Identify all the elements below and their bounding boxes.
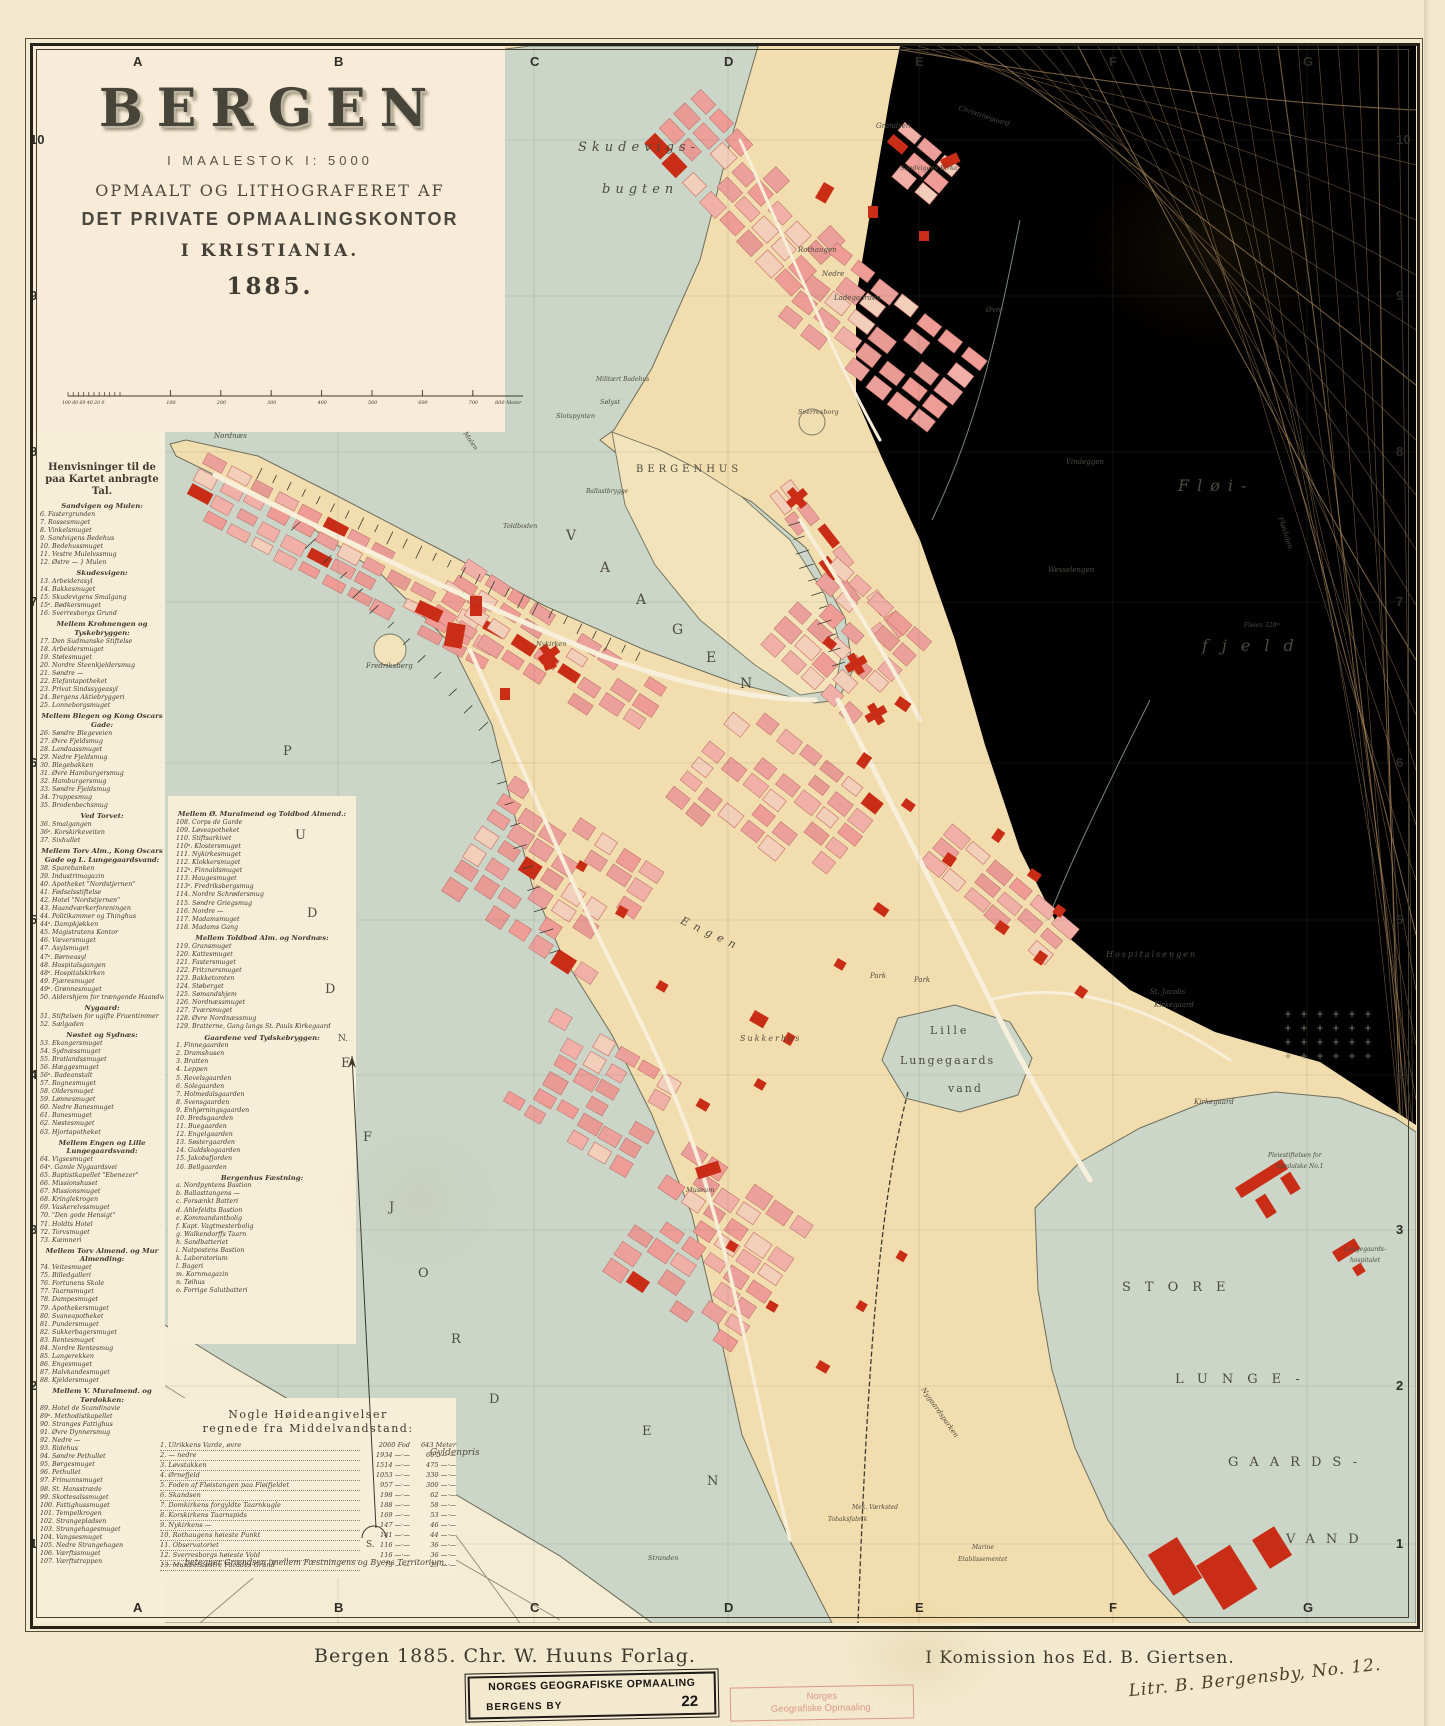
legend-mid-section-head: Mellem Toldbod Alm. og Nordnæs: bbox=[176, 934, 348, 943]
grid-label: 1 bbox=[30, 1536, 37, 1551]
legend-entry: 3. Bratten bbox=[176, 1058, 348, 1066]
grid-label: B bbox=[334, 54, 343, 69]
legend-entry: 63. Hjortapotheket bbox=[40, 1129, 164, 1137]
legend-entry: 17. Den Sudmanske Stiftelse bbox=[40, 638, 164, 646]
svg-text:100: 100 bbox=[166, 400, 175, 406]
legend-left-section-head: Mellem V. Muralmend. og Tørdokken: bbox=[40, 1387, 164, 1404]
legend-entry: 9. Sandvigens Bedehus bbox=[40, 535, 164, 543]
legend-references-continued: Mellem Ø. Muralmend og Toldbod Almend.:1… bbox=[176, 808, 348, 1296]
grid-label: 7 bbox=[30, 594, 37, 609]
legend-entry: 43. Haandværkerforeningen bbox=[40, 905, 164, 913]
legend-entry: 77. Taarnsmuget bbox=[40, 1288, 164, 1296]
legend-entry: 12. Østre — } Mulen bbox=[40, 559, 164, 567]
legend-entry: 86. Engesmuget bbox=[40, 1361, 164, 1369]
legend-entry: 89. Hotel de Scandinavie bbox=[40, 1405, 164, 1413]
legend-entry: 35. Brodenbechsmug bbox=[40, 802, 164, 810]
legend-entry: 126. Nordnæssmuget bbox=[176, 999, 348, 1007]
svg-text:500: 500 bbox=[368, 400, 377, 406]
legend-entry: 99. Skottesalssmuget bbox=[40, 1494, 164, 1502]
legend-entry: 24. Bergens Aktiebryggeri bbox=[40, 694, 164, 702]
legend-entry: 109. Løveapotheket bbox=[176, 827, 348, 835]
grid-label: 1 bbox=[1396, 1536, 1403, 1551]
legend-entry: 36ᵃ. Korskirkeveiten bbox=[40, 829, 164, 837]
publisher-imprint: Bergen 1885. Chr. W. Huuns Forlag. bbox=[280, 1645, 730, 1667]
legend-entry: 31. Øvre Hamburgersmug bbox=[40, 770, 164, 778]
legend-mid-section-head: Bergenhus Fæstning: bbox=[176, 1174, 348, 1183]
grid-label: 7 bbox=[1396, 594, 1403, 609]
legend-entry: 38. Sparebanken bbox=[40, 865, 164, 873]
legend-entry: 30. Blegebakken bbox=[40, 762, 164, 770]
legend-entry: 64ᵃ. Gamle Nygaardsvei bbox=[40, 1164, 164, 1172]
legend-entry: 45. Magistratens Kontor bbox=[40, 929, 164, 937]
legend-entry: 42. Hotel "Nordstjernen" bbox=[40, 897, 164, 905]
legend-entry: 29. Nedre Fjeldsmug bbox=[40, 754, 164, 762]
svg-text:300: 300 bbox=[267, 400, 276, 406]
legend-entry: 21. Søndre — bbox=[40, 670, 164, 678]
height-row: 8. Korskirkens Taarnspids169 —·—53 —·— bbox=[160, 1511, 456, 1521]
title-scale-line: I MAALESTOK I: 5000 bbox=[55, 153, 485, 168]
legend-entry: 11. Vestre Mulelvssmug bbox=[40, 551, 164, 559]
legend-entry: 23. Privat Sindssygeasyl bbox=[40, 686, 164, 694]
height-row: 7. Domkirkens forgyldte Taarnkugle188 —·… bbox=[160, 1501, 456, 1511]
legend-left-section-head: Mellem Engen og Lille Lungegaardsvand: bbox=[40, 1139, 164, 1156]
legend-entry: 44ᵃ. Dampkjøkken bbox=[40, 921, 164, 929]
legend-entry: 83. Rentesmuget bbox=[40, 1337, 164, 1345]
legend-entry: 81. Pundersmuget bbox=[40, 1321, 164, 1329]
legend-entry: 69. Vaskerelvssmuget bbox=[40, 1204, 164, 1212]
height-row: 3. Løvstakken1514 —·—475 —·— bbox=[160, 1461, 456, 1471]
legend-entry: 36. Smalgangen bbox=[40, 821, 164, 829]
height-row: 5. Foden af Fløistangen paa Fløifjeldet9… bbox=[160, 1481, 456, 1491]
legend-entry: 84. Nordre Rentesmug bbox=[40, 1345, 164, 1353]
legend-entry: 106. Værftssmuget bbox=[40, 1550, 164, 1558]
grid-label: 10 bbox=[1396, 132, 1410, 147]
legend-entry: 62. Nøstesmuget bbox=[40, 1120, 164, 1128]
title-line4: I KRISTIANIA. bbox=[55, 241, 485, 261]
commission-imprint: I Komission hos Ed. B. Giertsen. bbox=[850, 1648, 1310, 1668]
legend-entry: 103. Strangehagesmuget bbox=[40, 1526, 164, 1534]
legend-left-section-head: Mellem Torv Alm., Kong Oscars Gade og L.… bbox=[40, 847, 164, 864]
legend-entry: 85. Langerekken bbox=[40, 1353, 164, 1361]
map-title-block: BERGEN I MAALESTOK I: 5000 OPMAALT OG LI… bbox=[55, 78, 485, 300]
grid-label: 3 bbox=[30, 1222, 37, 1237]
legend-entry: 80. Svaneapotheket bbox=[40, 1313, 164, 1321]
legend-entry: n. Tøihus bbox=[176, 1279, 348, 1287]
legend-entry: 114. Nordre Schrødersmug bbox=[176, 891, 348, 899]
legend-entry: 5. Revelsgaarden bbox=[176, 1075, 348, 1083]
legend-entry: 12. Engelgaarden bbox=[176, 1131, 348, 1139]
legend-entry: 76. Fortunens Skole bbox=[40, 1280, 164, 1288]
legend-entry: 50. Aldershjem for trængende Haandværker… bbox=[40, 994, 164, 1002]
legend-entry: 108. Corps de Garde bbox=[176, 819, 348, 827]
legend-entry: 39. Industrimagazin bbox=[40, 873, 164, 881]
legend-entry: 13. Søstergaarden bbox=[176, 1139, 348, 1147]
legend-entry: 65. Baptistkapellet "Ebenezer" bbox=[40, 1172, 164, 1180]
legend-entry: 117. Madamsmuget bbox=[176, 916, 348, 924]
grid-label: A bbox=[133, 1600, 142, 1615]
title-line3: DET PRIVATE OPMAALINGSKONTOR bbox=[55, 209, 485, 230]
grid-label: 4 bbox=[30, 1067, 37, 1082]
legend-entry: 123. Bakketomten bbox=[176, 975, 348, 983]
legend-mid-section-head: Mellem Ø. Muralmend og Toldbod Almend.: bbox=[176, 810, 348, 819]
legend-entry: 15. Jakobsfjorden bbox=[176, 1155, 348, 1163]
legend-entry: 120. Kattesmuget bbox=[176, 951, 348, 959]
grid-label: 8 bbox=[1396, 444, 1403, 459]
legend-entry: 10. Bredsgaarden bbox=[176, 1115, 348, 1123]
legend-entry: 60. Nedre Banesmuget bbox=[40, 1104, 164, 1112]
legend-entry: 34. Trappesmug bbox=[40, 794, 164, 802]
legend-entry: 110. Stiftsarkivet bbox=[176, 835, 348, 843]
grid-label: D bbox=[724, 54, 733, 69]
legend-entry: a. Nordpyntens Bastion bbox=[176, 1182, 348, 1190]
legend-entry: 82. Sukkerbagersmuget bbox=[40, 1329, 164, 1337]
grid-label: E bbox=[915, 54, 924, 69]
legend-entry: 44. Politikammer og Thinghus bbox=[40, 913, 164, 921]
legend-left-section-head: Ved Torvet: bbox=[40, 812, 164, 821]
grid-label: C bbox=[530, 54, 539, 69]
legend-entry: 61. Banesmuget bbox=[40, 1112, 164, 1120]
red-stamp-line2: Geografiske Opmaaling. bbox=[733, 1701, 911, 1716]
height-row: 1. Ulrikkens Varde, øvre2060 Fod643 Mete… bbox=[160, 1441, 456, 1451]
legend-entry: 129. Bratterne, Gang langs St. Pauls Kir… bbox=[176, 1023, 348, 1031]
legend-entry: 4. Leppen bbox=[176, 1066, 348, 1074]
heights-title-2: regnede fra Middelvandstand: bbox=[160, 1422, 456, 1436]
legend-entry: 127. Tværsmuget bbox=[176, 1007, 348, 1015]
legend-entry: 96. Pethullet bbox=[40, 1469, 164, 1477]
legend-entry: 67. Missionsmuget bbox=[40, 1188, 164, 1196]
grid-label: D bbox=[724, 1600, 733, 1615]
legend-entry: 40. Apotheket "Nordstjernen" bbox=[40, 881, 164, 889]
legend-entry: 26. Søndre Blegeveien bbox=[40, 730, 164, 738]
legend-entry: 87. Halvkandesmuget bbox=[40, 1369, 164, 1377]
grid-label: 2 bbox=[30, 1378, 37, 1393]
stamp-institution: NORGES GEOGRAFISKE OPMAALING bbox=[476, 1677, 708, 1694]
legend-entry: 79. Apothekersmuget bbox=[40, 1305, 164, 1313]
legend-entry: 125. Sømandshjem bbox=[176, 991, 348, 999]
legend-left-section-head: Nygaard: bbox=[40, 1004, 164, 1013]
svg-text:100 80 60 40 20 0: 100 80 60 40 20 0 bbox=[62, 400, 104, 406]
legend-entry: 102. Strangepladsen bbox=[40, 1518, 164, 1526]
legend-entry: 112. Klokkersmuget bbox=[176, 859, 348, 867]
legend-references: Henvisninger til de paa Kartet anbragte … bbox=[40, 462, 164, 1567]
grid-label: 6 bbox=[30, 755, 37, 770]
grid-label: F bbox=[1109, 54, 1117, 69]
legend-entry: 90. Stranges Fattighus bbox=[40, 1421, 164, 1429]
svg-text:200: 200 bbox=[216, 400, 226, 406]
legend-entry: 53. Ekangersmuget bbox=[40, 1040, 164, 1048]
legend-entry: 54. Sydnæssmuget bbox=[40, 1048, 164, 1056]
legend-entry: 16. Sverresborgs Grund bbox=[40, 610, 164, 618]
legend-entry: m. Kornmagazin bbox=[176, 1271, 348, 1279]
legend-entry: f. Kapt. Vagtmesterbolig bbox=[176, 1223, 348, 1231]
legend-left-section-head: Skudesvigen: bbox=[40, 569, 164, 578]
legend-entry: 25. Lonneborgsmuget bbox=[40, 702, 164, 710]
legend-entry: 27. Øvre Fjeldsmug bbox=[40, 738, 164, 746]
page-title: BERGEN bbox=[55, 78, 485, 139]
legend-entry: l. Bageri bbox=[176, 1263, 348, 1271]
svg-text:700: 700 bbox=[469, 400, 478, 406]
territory-boundary-note: ........ betegner Grændsen imellem Fæstn… bbox=[162, 1558, 592, 1567]
legend-entry: 56ᵃ. Badeanstalt bbox=[40, 1072, 164, 1080]
heights-title-1: Nogle Høideangivelser bbox=[160, 1408, 456, 1422]
grid-label: 2 bbox=[1396, 1378, 1403, 1393]
legend-entry: 55. Bratlandssmuget bbox=[40, 1056, 164, 1064]
grid-label: 10 bbox=[30, 132, 44, 147]
library-stamp-black: NORGES GEOGRAFISKE OPMAALING BERGENS BY … bbox=[468, 1671, 717, 1719]
legend-entry: 64. Vigsesmuget bbox=[40, 1156, 164, 1164]
legend-entry: 74. Veitesmuget bbox=[40, 1264, 164, 1272]
legend-entry: k. Laboratorium bbox=[176, 1255, 348, 1263]
legend-entry: 98. St. Hansstræde bbox=[40, 1486, 164, 1494]
legend-entry: 47ᵃ. Børneasyl bbox=[40, 954, 164, 962]
legend-left-section-head: Mellem Krohnengen og Tyskebryggen: bbox=[40, 620, 164, 637]
legend-entry: 8. Vinkelsmuget bbox=[40, 527, 164, 535]
height-row: 10. Rothaugens høieste Punkt141 —·—44 —·… bbox=[160, 1531, 456, 1541]
legend-entry: 95. Børgesmuget bbox=[40, 1461, 164, 1469]
legend-left-section-head: Sandvigen og Mulen: bbox=[40, 502, 164, 511]
grid-label: A bbox=[133, 54, 142, 69]
title-year: 1885. bbox=[55, 273, 485, 300]
legend-entry: 70. "Den gode Hensigt" bbox=[40, 1212, 164, 1220]
legend-entry: 113ᵃ. Fredriksbergsmug bbox=[176, 883, 348, 891]
legend-entry: 101. Tempelkrogen bbox=[40, 1510, 164, 1518]
legend-entry: 9. Enhjørningsgaarden bbox=[176, 1107, 348, 1115]
legend-entry: 121. Fastersmuget bbox=[176, 959, 348, 967]
svg-text:800 Meter: 800 Meter bbox=[495, 400, 522, 406]
legend-entry: 92. Nedre — bbox=[40, 1437, 164, 1445]
legend-entry: e. Kommandantbolig bbox=[176, 1215, 348, 1223]
legend-entry: 7. Rossesmuget bbox=[40, 519, 164, 527]
svg-text:600: 600 bbox=[418, 400, 427, 406]
height-row: 2. — nedre1934 —·—607 —·— bbox=[160, 1451, 456, 1461]
paper-fold bbox=[1424, 0, 1432, 1726]
legend-entry: 78. Dampesmuget bbox=[40, 1296, 164, 1304]
legend-entry: 15. Skudevigens Smalgang bbox=[40, 594, 164, 602]
legend-entry: 48. Hospitalsgangen bbox=[40, 962, 164, 970]
legend-left-section-head: Mellem Blegen og Kong Oscars Gade: bbox=[40, 712, 164, 729]
grid-label: 9 bbox=[30, 288, 37, 303]
grid-label: 8 bbox=[30, 444, 37, 459]
legend-entry: 16. Bellgaarden bbox=[176, 1164, 348, 1172]
legend-entry: 66. Missionshuset bbox=[40, 1180, 164, 1188]
legend-entry: h. Sandbatteriet bbox=[176, 1239, 348, 1247]
legend-entry: 49ᵃ. Grønnesmuget bbox=[40, 986, 164, 994]
map-sheet: 100 80 60 40 20 010020030040050060070080… bbox=[0, 0, 1445, 1726]
legend-entry: 113. Haugesmuget bbox=[176, 875, 348, 883]
grid-label: G bbox=[1303, 1600, 1313, 1615]
legend-mid-section-head: Gaardene ved Tydskebryggen: bbox=[176, 1034, 348, 1043]
legend-entry: d. Ahlefeldts Bastion bbox=[176, 1207, 348, 1215]
legend-title: Henvisninger til de paa Kartet anbragte … bbox=[40, 462, 164, 498]
legend-entry: 14. Bakkesmuget bbox=[40, 586, 164, 594]
legend-entry: 13. Arbeiderasyl bbox=[40, 578, 164, 586]
legend-entry: 59. Lønnesmuget bbox=[40, 1096, 164, 1104]
legend-entry: 2. Dramshusen bbox=[176, 1050, 348, 1058]
legend-entry: c. Forsænkt Batteri bbox=[176, 1198, 348, 1206]
legend-entry: 8. Svensgaarden bbox=[176, 1099, 348, 1107]
legend-entry: 73. Kæmneri bbox=[40, 1237, 164, 1245]
legend-entry: 47. Asylsmuget bbox=[40, 945, 164, 953]
legend-entry: 97. Frimannsmuget bbox=[40, 1477, 164, 1485]
grid-label: B bbox=[334, 1600, 343, 1615]
legend-entry: 33. Søndre Fjeldsmug bbox=[40, 786, 164, 794]
legend-entry: 37. Sixhullet bbox=[40, 837, 164, 845]
legend-entry: 6. Fastergrunden bbox=[40, 511, 164, 519]
svg-text:400: 400 bbox=[317, 400, 327, 406]
legend-entry: 14. Guldskogaarden bbox=[176, 1147, 348, 1155]
grid-label: 9 bbox=[1396, 288, 1403, 303]
library-stamp-red: Norges Geografiske Opmaaling. bbox=[730, 1684, 915, 1721]
grid-label: 6 bbox=[1396, 755, 1403, 770]
legend-entry: 68. Kringlekrogen bbox=[40, 1196, 164, 1204]
legend-entry: 107. Værftstrappen bbox=[40, 1558, 164, 1566]
legend-left-section-head: Nøstet og Sydnæs: bbox=[40, 1031, 164, 1040]
grid-label: 3 bbox=[1396, 1222, 1403, 1237]
legend-entry: 94. Søndre Pethullet bbox=[40, 1453, 164, 1461]
legend-entry: 104. Vangsesmuget bbox=[40, 1534, 164, 1542]
grid-label: G bbox=[1303, 54, 1313, 69]
legend-entry: 56. Hæggesmuget bbox=[40, 1064, 164, 1072]
legend-entry: 28. Landaassmuget bbox=[40, 746, 164, 754]
legend-entry: 119. Gransmuget bbox=[176, 943, 348, 951]
legend-entry: 49. Fjæresmuget bbox=[40, 978, 164, 986]
legend-entry: i. Natpostens Bastion bbox=[176, 1247, 348, 1255]
legend-entry: 11. Buegaarden bbox=[176, 1123, 348, 1131]
legend-entry: 20. Nordre Steenkjeldersmug bbox=[40, 662, 164, 670]
grid-label: 5 bbox=[30, 912, 37, 927]
legend-entry: 52. Sælgaden bbox=[40, 1021, 164, 1029]
grid-label: F bbox=[1109, 1600, 1117, 1615]
legend-entry: 22. Elefantapotheket bbox=[40, 678, 164, 686]
legend-entry: g. Walkendorffs Taarn bbox=[176, 1231, 348, 1239]
legend-entry: 41. Fødselsstiftelse bbox=[40, 889, 164, 897]
legend-entry: 15ᵃ. Bødkersmuget bbox=[40, 602, 164, 610]
legend-entry: o. Forrige Salutbatteri bbox=[176, 1287, 348, 1295]
legend-entry: 112ᵃ. Finnaldsmuget bbox=[176, 867, 348, 875]
legend-entry: 19. Stølesmuget bbox=[40, 654, 164, 662]
height-row: 4. Ørnefjeld1053 —·—330 —·— bbox=[160, 1471, 456, 1481]
height-row: 9. Nykirkens —147 —·—46 —·— bbox=[160, 1521, 456, 1531]
legend-left-section-head: Mellem Torv Almend. og Mur Almending: bbox=[40, 1247, 164, 1264]
legend-entry: 128. Øvre Nordnæssmug bbox=[176, 1015, 348, 1023]
legend-entry: 48ᵃ. Hospitalskirken bbox=[40, 970, 164, 978]
grid-label: 5 bbox=[1396, 912, 1403, 927]
legend-entry: 46. Væversmuget bbox=[40, 937, 164, 945]
legend-entry: 18. Arbeidersmuget bbox=[40, 646, 164, 654]
legend-entry: 122. Fritznersmuget bbox=[176, 967, 348, 975]
grid-label: 4 bbox=[1396, 1067, 1403, 1082]
grid-label: E bbox=[915, 1600, 924, 1615]
legend-entry: 10. Bedehussmuget bbox=[40, 543, 164, 551]
legend-entry: 116. Nordre — bbox=[176, 908, 348, 916]
legend-entry: b. Ballasttangens — bbox=[176, 1190, 348, 1198]
height-row: 6. Skandsen198 —·—62 —·— bbox=[160, 1491, 456, 1501]
legend-entry: 105. Nedre Strangehagen bbox=[40, 1542, 164, 1550]
grid-label: C bbox=[530, 1600, 539, 1615]
legend-entry: 91. Øvre Dynnersmug bbox=[40, 1429, 164, 1437]
legend-entry: 57. Rognesmuget bbox=[40, 1080, 164, 1088]
legend-entry: 1. Finnegaarden bbox=[176, 1042, 348, 1050]
stamp-number: 22 bbox=[681, 1693, 698, 1710]
legend-entry: 88. Kjeldersmuget bbox=[40, 1377, 164, 1385]
legend-entry: 71. Holdts Hotel bbox=[40, 1221, 164, 1229]
legend-entry: 7. Holmedalsgaarden bbox=[176, 1091, 348, 1099]
legend-entry: 118. Madams Gang bbox=[176, 924, 348, 932]
legend-entry: 93. Ridehus bbox=[40, 1445, 164, 1453]
legend-entry: 111. Nykirkesmuget bbox=[176, 851, 348, 859]
legend-entry: 6. Solegaarden bbox=[176, 1083, 348, 1091]
title-line2: OPMAALT OG LITHOGRAFERET AF bbox=[55, 181, 485, 200]
legend-entry: 110ᵃ. Klostersmuget bbox=[176, 843, 348, 851]
legend-entry: 72. Torvsmuget bbox=[40, 1229, 164, 1237]
legend-entry: 124. Støberget bbox=[176, 983, 348, 991]
legend-entry: 115. Søndre Griegsmug bbox=[176, 900, 348, 908]
height-row: 11. Observatoriet116 —·—36 —·— bbox=[160, 1541, 456, 1551]
legend-entry: 58. Oldersmuget bbox=[40, 1088, 164, 1096]
legend-entry: 32. Hamburgersmug bbox=[40, 778, 164, 786]
heights-table: Nogle Høideangivelser regnede fra Middel… bbox=[160, 1408, 456, 1571]
legend-entry: 89ᵃ. Methodistkapellet bbox=[40, 1413, 164, 1421]
legend-entry: 100. Fattighussmuget bbox=[40, 1502, 164, 1510]
legend-entry: 75. Billedgalleri bbox=[40, 1272, 164, 1280]
stamp-city: BERGENS BY bbox=[486, 1701, 562, 1714]
legend-entry: 51. Stiftelsen for ugifte Fruentimmer bbox=[40, 1013, 164, 1021]
